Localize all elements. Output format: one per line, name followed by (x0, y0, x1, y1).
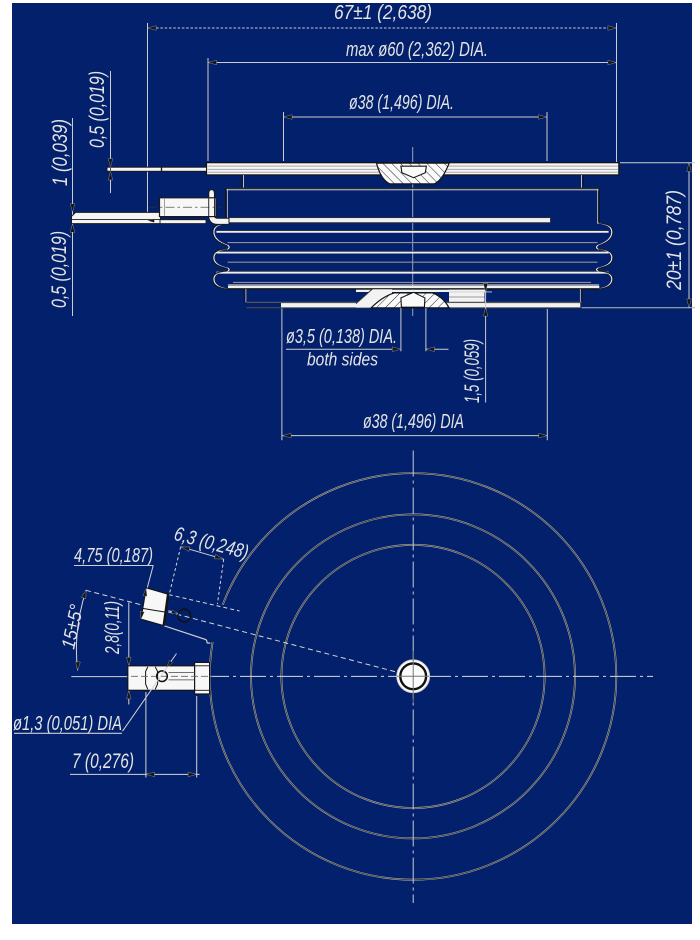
svg-text:67±1 (2,638): 67±1 (2,638) (334, 2, 432, 24)
svg-text:1 (0,039): 1 (0,039) (49, 119, 72, 186)
svg-text:both sides: both sides (307, 350, 378, 370)
svg-text:ø38 (1,496) DIA.: ø38 (1,496) DIA. (349, 92, 454, 114)
svg-text:ø3,5 (0,138) DIA.: ø3,5 (0,138) DIA. (286, 326, 397, 348)
svg-text:ø38 (1,496) DIA: ø38 (1,496) DIA (363, 411, 464, 433)
svg-text:0,5 (0,019): 0,5 (0,019) (48, 231, 71, 308)
svg-text:1,5 (0,059): 1,5 (0,059) (461, 339, 484, 403)
svg-text:ø1,3 (0,051) DIA: ø1,3 (0,051) DIA (13, 713, 122, 735)
svg-text:7 (0,276): 7 (0,276) (72, 750, 134, 773)
svg-text:4,75 (0,187): 4,75 (0,187) (74, 545, 153, 567)
svg-text:0,5 (0,019): 0,5 (0,019) (86, 71, 109, 148)
svg-text:20±1 (0,787): 20±1 (0,787) (663, 190, 686, 291)
svg-text:max ø60 (2,362) DIA.: max ø60 (2,362) DIA. (346, 39, 488, 61)
svg-text:2,8(0,11): 2,8(0,11) (102, 601, 124, 655)
